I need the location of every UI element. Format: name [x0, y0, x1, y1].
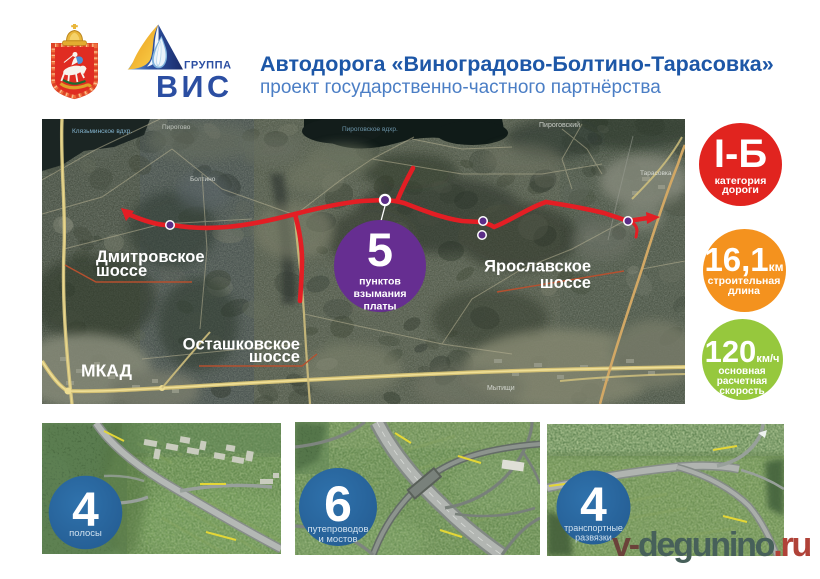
svg-text:развязки: развязки: [575, 533, 612, 543]
svg-text:Болтино: Болтино: [190, 176, 216, 183]
svg-text:Пироговское вдхр.: Пироговское вдхр.: [342, 126, 398, 133]
svg-text:5: 5: [367, 223, 393, 276]
svg-text:шоссе: шоссе: [540, 274, 591, 292]
svg-text:взымания: взымания: [353, 288, 406, 300]
svg-text:МКАД: МКАД: [81, 361, 133, 381]
svg-text:Мытищи: Мытищи: [487, 385, 515, 392]
svg-text:Пироговский: Пироговский: [539, 121, 580, 129]
svg-text:и мостов: и мостов: [318, 534, 357, 545]
svg-text:шоссе: шоссе: [96, 262, 147, 280]
svg-text:пунктов: пунктов: [359, 276, 401, 288]
svg-text:платы: платы: [364, 301, 397, 313]
svg-text:Тарасовка: Тарасовка: [640, 170, 672, 177]
svg-text:Пирогово: Пирогово: [162, 124, 191, 131]
svg-text:шоссе: шоссе: [249, 348, 300, 366]
svg-text:Ярославское: Ярославское: [484, 258, 591, 276]
svg-text:ВИС: ВИС: [156, 70, 232, 100]
svg-text:полосы: полосы: [69, 528, 102, 539]
svg-text:Клязьминское вдхр.: Клязьминское вдхр.: [72, 128, 132, 135]
